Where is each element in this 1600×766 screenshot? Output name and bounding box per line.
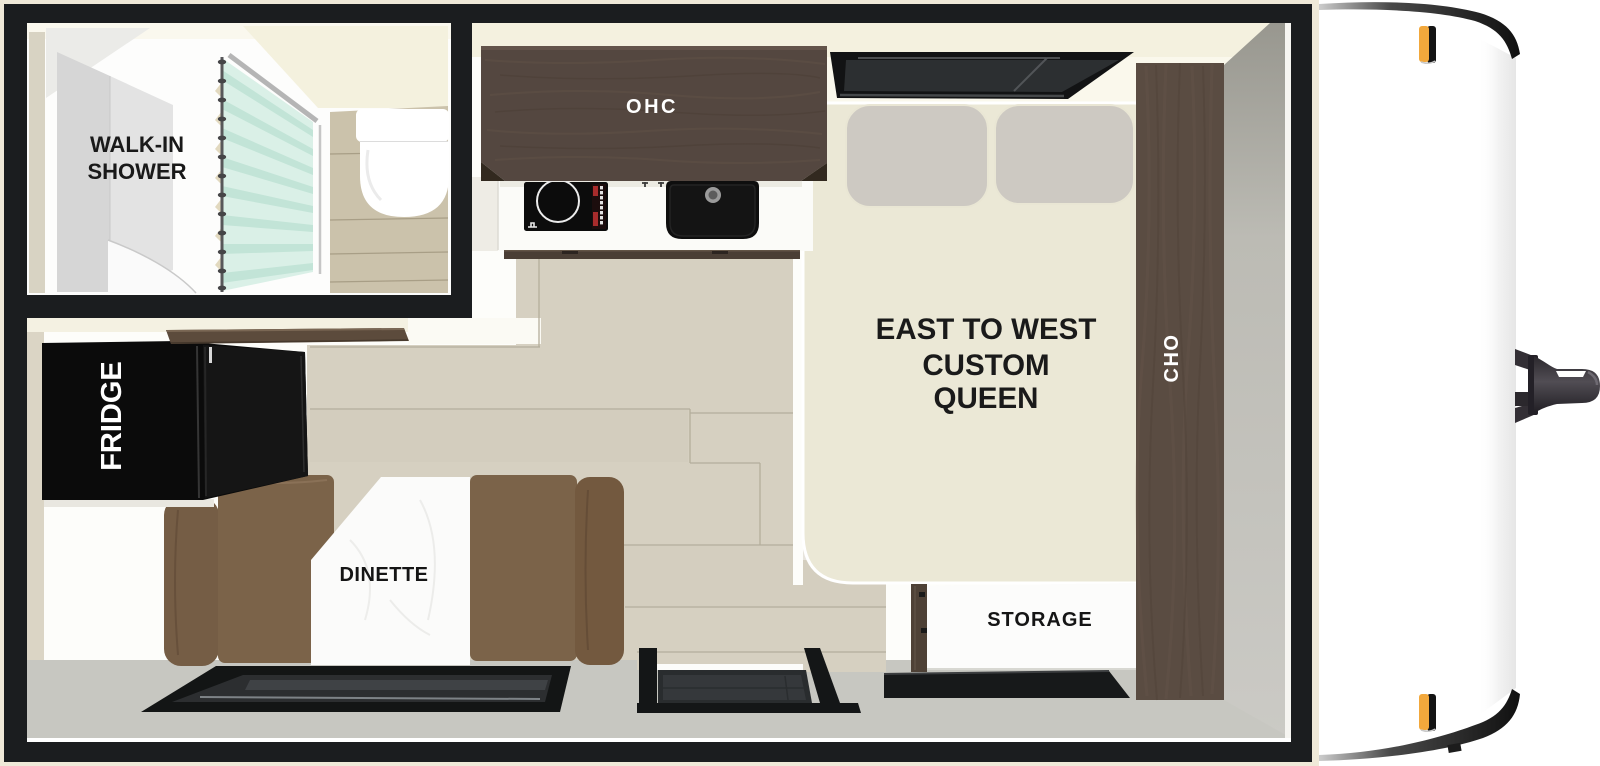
svg-text:CUSTOM: CUSTOM (922, 349, 1049, 382)
svg-text:OHC: OHC (626, 96, 678, 118)
svg-text:STORAGE: STORAGE (987, 609, 1093, 631)
svg-text:SHOWER: SHOWER (88, 159, 187, 184)
svg-text:FRIDGE: FRIDGE (96, 361, 128, 471)
svg-text:WALK-IN: WALK-IN (90, 132, 184, 157)
svg-text:EAST TO WEST: EAST TO WEST (876, 313, 1097, 346)
svg-text:CHO: CHO (1161, 334, 1183, 383)
svg-text:QUEEN: QUEEN (934, 382, 1039, 415)
svg-text:DINETTE: DINETTE (339, 564, 428, 586)
